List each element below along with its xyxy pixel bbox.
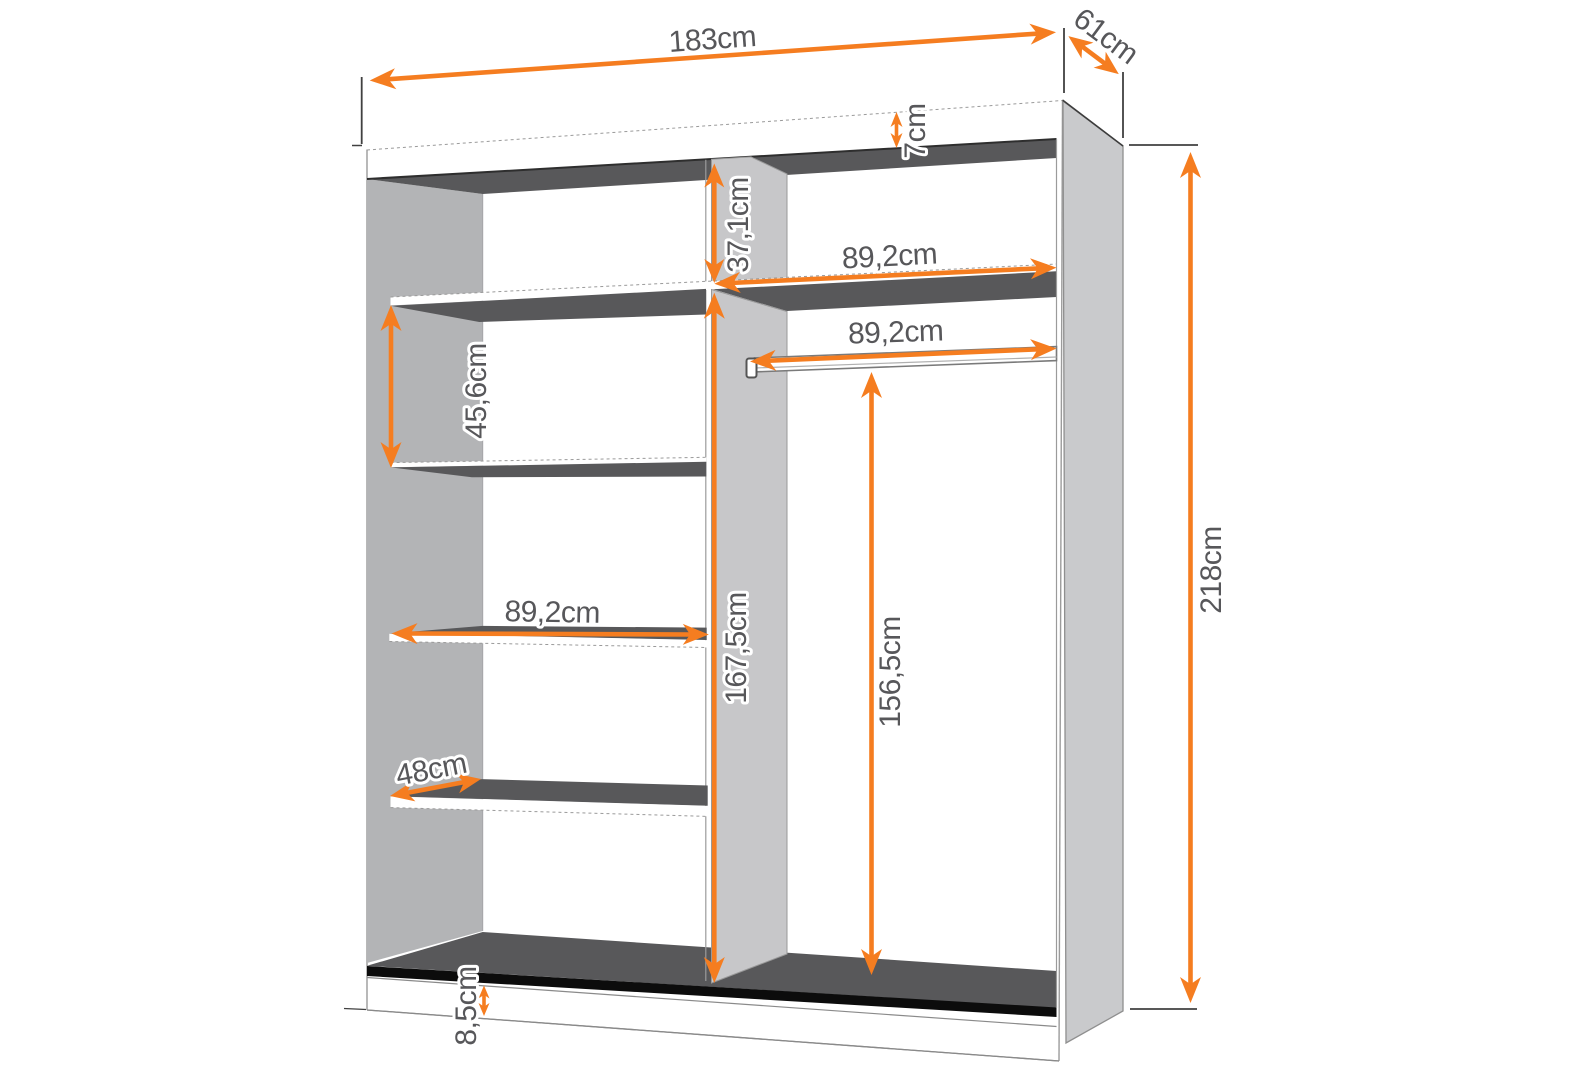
svg-text:218cm: 218cm (1195, 526, 1228, 614)
svg-text:37,1cm: 37,1cm (722, 177, 755, 272)
svg-text:156,5cm: 156,5cm (874, 616, 907, 728)
svg-text:89,2cm: 89,2cm (847, 314, 943, 350)
svg-text:183cm: 183cm (668, 20, 758, 59)
svg-text:167,5cm: 167,5cm (720, 592, 753, 704)
svg-text:8,5cm: 8,5cm (450, 966, 483, 1045)
svg-text:89,2cm: 89,2cm (841, 238, 938, 276)
svg-text:89,2cm: 89,2cm (504, 595, 600, 630)
svg-text:7cm: 7cm (899, 103, 932, 158)
svg-text:45,6cm: 45,6cm (460, 343, 493, 438)
